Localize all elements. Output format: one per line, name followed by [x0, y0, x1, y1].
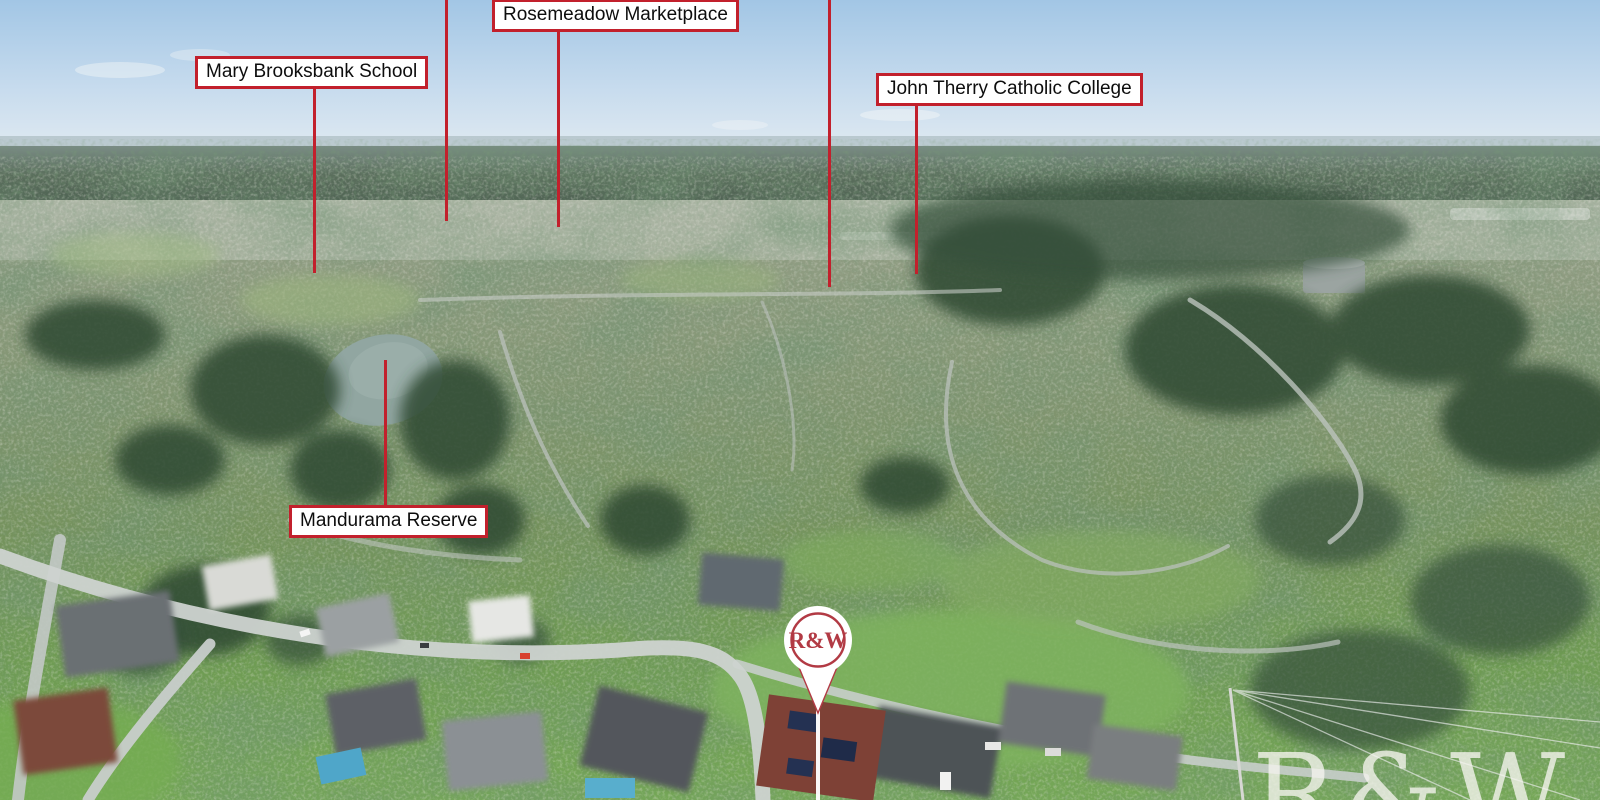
location-label-rosemeadow-marketplace: Rosemeadow Marketplace	[492, 0, 739, 32]
leader-line-offscreen-2	[828, 0, 831, 287]
aerial-marketing-image: Mary Brooksbank School Rosemeadow Market…	[0, 0, 1600, 800]
leader-line-rosemeadow	[557, 31, 560, 227]
leader-line-mandurama	[384, 360, 387, 506]
property-pin: R&W	[776, 603, 860, 719]
location-label-mandurama-reserve: Mandurama Reserve	[289, 505, 488, 538]
pin-brand-text: R&W	[789, 628, 848, 653]
leader-line-offscreen-1	[445, 0, 448, 221]
annotation-layer: Mary Brooksbank School Rosemeadow Market…	[0, 0, 1600, 800]
brand-watermark: R&W	[1252, 740, 1572, 800]
map-pin-icon: R&W	[776, 603, 860, 719]
location-label-mary-brooksbank-school: Mary Brooksbank School	[195, 56, 428, 89]
leader-line-mary-brooksbank	[313, 87, 316, 273]
location-label-john-therry-catholic-college: John Therry Catholic College	[876, 73, 1143, 106]
pin-stem-line	[816, 710, 820, 800]
leader-line-john-therry	[915, 100, 918, 274]
